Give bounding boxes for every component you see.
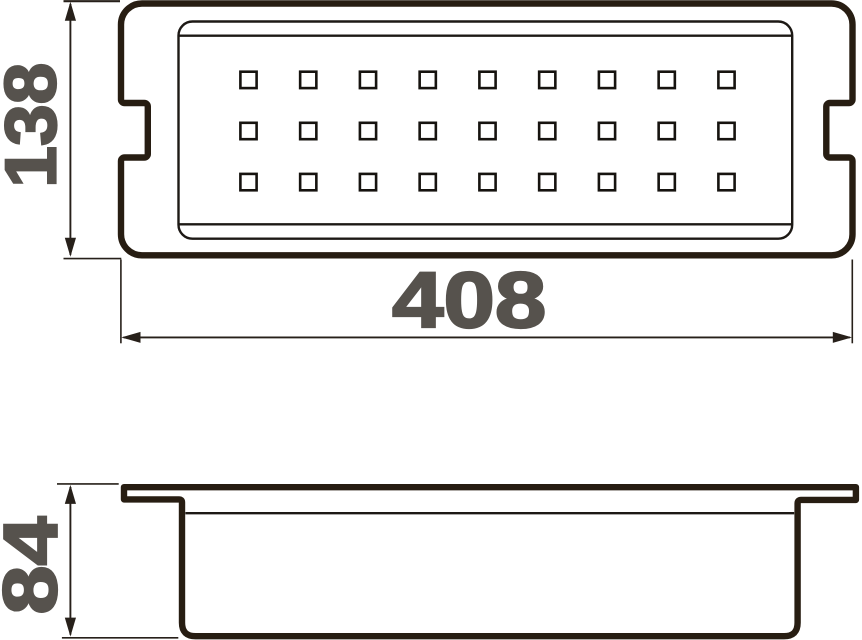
svg-text:408: 408 [392,256,546,344]
svg-text:84: 84 [0,516,73,614]
svg-text:138: 138 [0,63,71,188]
